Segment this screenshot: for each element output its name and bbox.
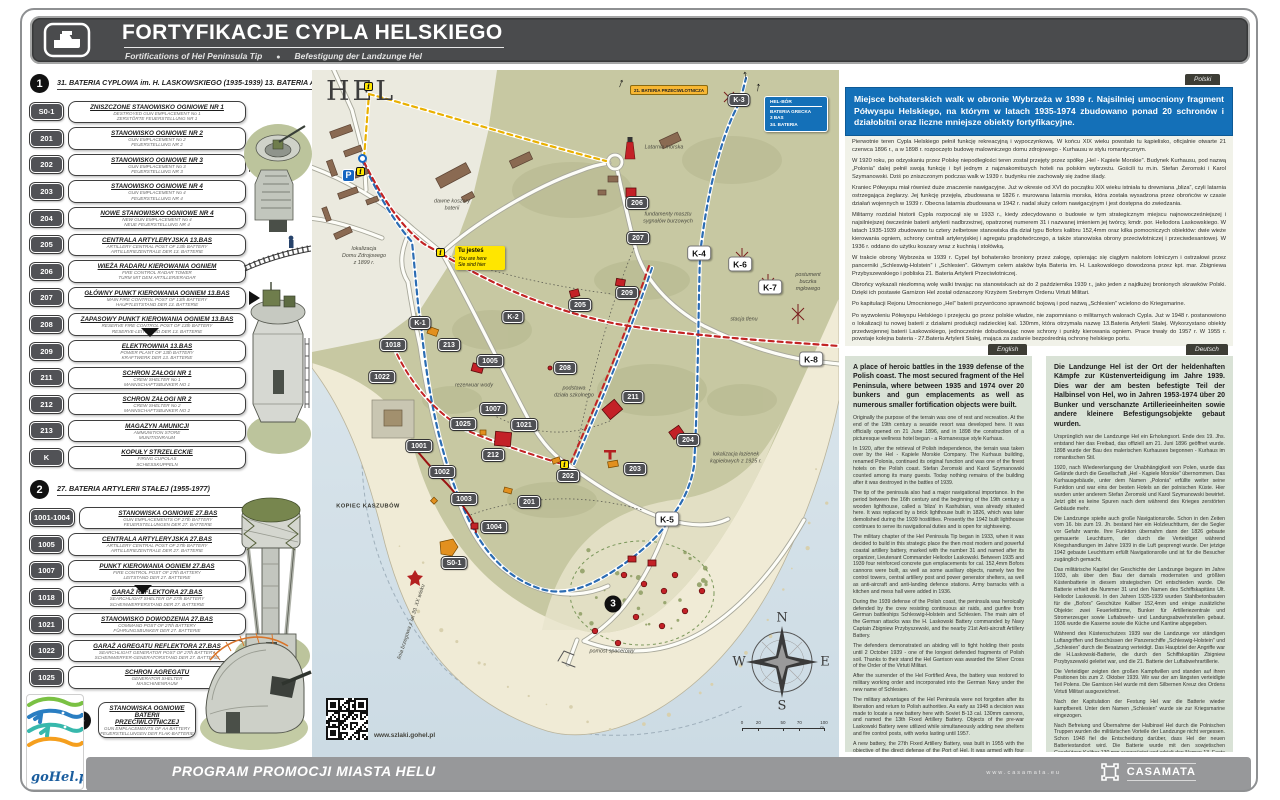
map-label: postument buczka mgłowego [793, 272, 824, 292]
map-label: KOPIEC KASZUBÓW [336, 504, 399, 511]
footer-bar: PROGRAM PROMOCJI MIASTA HELU www.casamat… [86, 757, 1251, 791]
info-icon: i [364, 82, 373, 91]
map-marker-S0-1: S0-1 [442, 557, 467, 569]
paragraph: The military advantages of the Hel Penin… [853, 697, 1024, 738]
legend-sub-de: TURM MIT DEM ARTILLERIERADAR [118, 275, 195, 280]
legend-code-badge: 204 [30, 210, 63, 227]
paragraph: In 1920, after the retrieval of Polish i… [853, 446, 1024, 487]
paragraph: W trakcie obrony Wybrzeża w 1939 r. Cype… [852, 255, 1226, 279]
map-marker-K-6: K-6 [728, 257, 752, 272]
legend-code-badge: 1025 [30, 669, 63, 686]
legend-item-203: 203STANOWISKO OGNIOWE NR 4GUN EMPLACEMEN… [30, 180, 260, 204]
legend-code-badge: 209 [30, 343, 63, 360]
legend-sub-de: FEUERSTELLUNG NR 2 [131, 142, 183, 147]
legend-sub-de: ZERSTÖRTE FEUERSTELLUNG NR 1 [117, 116, 198, 121]
legend-code-badge: 212 [30, 396, 63, 413]
legend-item-box: WIEŻA RADARU KIEROWANIA OGNIEMFIRE CONTR… [68, 260, 246, 282]
legend-title-pl: ZAPASOWY PUNKT KIEROWANIA OGNIEM 13.BAS [81, 316, 234, 323]
legend-item-213: 213MAGAZYN AMUNICJIAMMUNITION STOREMUNIT… [30, 419, 260, 443]
legend-item-205: 205CENTRALA ARTYLERYJSKA 13.BASARTILLERY… [30, 233, 260, 257]
polish-lead: Miejsce bohaterskich walk w obronie Wybr… [845, 87, 1233, 136]
legend-title-pl: ELEKTROWNIA 13.BAS [122, 343, 192, 350]
map-marker-K-2: K-2 [502, 311, 523, 323]
legend-list-battery-31: S0-1ZNISZCZONE STANOWISKO OGNIOWE NR 1DE… [30, 100, 260, 469]
map-marker-1018: 1018 [380, 339, 406, 351]
arrow-down-icon [134, 585, 152, 594]
legend-sub-de: MUNITIONRAUM [139, 435, 175, 440]
map-marker-205: 205 [569, 299, 591, 311]
legend-sub-de: ARTILLERIEZENTRALE DER 27. BATTERIE [111, 548, 203, 553]
paragraph: Die Landzunge spielte auch große Navigat… [1054, 516, 1225, 564]
map-marker-1025: 1025 [450, 418, 476, 430]
map-label: fundamenty masztu sygnałów burzowych [643, 211, 693, 225]
map-label: lokalizacja Domu Zdrojowego z 1899 r. [342, 246, 386, 266]
map-label: stacja tlenu [730, 317, 757, 324]
map-marker-1002: 1002 [429, 466, 455, 478]
legend-title-pl: STANOWISKO OGNIOWE NR 2 [111, 130, 203, 137]
you-are-here-pl: Tu jesteś [458, 248, 502, 256]
arrow-down-icon [141, 328, 159, 337]
legend-code-badge: 1018 [30, 589, 63, 606]
map-marker-209: 209 [616, 287, 638, 299]
legend-item-box: ELEKTROWNIA 13.BASPOWER PLANT OF 13th BA… [68, 340, 246, 362]
route-line: 3 BAS [770, 115, 822, 122]
trailhead-icon [358, 154, 367, 163]
legend-sub-de: MANNSCHAFTSBUNKER NO 1 [124, 382, 190, 387]
scale-label: 0 [741, 720, 744, 725]
legend-title-pl: KOPUŁY STRZELECKIE [121, 449, 193, 456]
map-marker-212: 212 [482, 449, 504, 461]
english-body: Originally the purpose of the terrain wa… [853, 415, 1024, 752]
legend-title-pl: STANOWISKA OGNIOWE 27.BAS [118, 510, 217, 517]
legend-code-badge: 205 [30, 236, 63, 253]
info-icon: i [356, 167, 365, 176]
map-marker-K-5: K-5 [655, 512, 679, 527]
map-base [312, 70, 839, 757]
legend-item-box: SCHRON ZAŁOGI NR 1CREW SHELTER No 1MANNS… [68, 367, 246, 389]
section-2-number: 2 [30, 480, 49, 499]
legend-title-pl: SCHRON ZAŁOGI NR 2 [123, 396, 192, 403]
map-marker-1005: 1005 [477, 355, 503, 367]
map-marker-204: 204 [677, 434, 699, 446]
paragraph: The military chapter of the Hel Peninsul… [853, 534, 1024, 596]
compass-e: E [820, 655, 830, 670]
legend-title-pl: GŁÓWNY PUNKT KIEROWANIA OGNIEM 13.BAS [84, 290, 229, 297]
program-label: PROGRAM PROMOCJI MIASTA HELU [172, 763, 436, 779]
map-marker-1004: 1004 [481, 521, 507, 533]
scale-label: 70 [797, 720, 802, 725]
legend-section-2-header: 2 27. BATERIA ARTYLERII STAŁEJ (1955-197… [30, 480, 210, 499]
map-marker-1021: 1021 [511, 419, 537, 431]
german-body: Ursprünglich war die Landzunge Hel ein E… [1054, 434, 1225, 752]
legend-title-pl: STANOWISKO OGNIOWE NR 3 [111, 157, 203, 164]
legend-section-3: 3 STANOWISKA OGNIOWE BATERII PRZECIWLOTN… [72, 702, 196, 738]
legend-item-212: 212SCHRON ZAŁOGI NR 2CREW SHELTER No 2MA… [30, 393, 260, 417]
legend-item-209: 209ELEKTROWNIA 13.BASPOWER PLANT OF 13th… [30, 339, 260, 363]
title-bar: FORTYFIKACJE CYPLA HELSKIEGO Fortificati… [30, 16, 1250, 64]
legend-code-badge: 201 [30, 130, 63, 147]
paragraph: Originally the purpose of the terrain wa… [853, 415, 1024, 442]
map-marker-1007: 1007 [480, 403, 506, 415]
legend-sub-de: SCHEINWERFERSTAND DER 27. BATTERIE [110, 602, 205, 607]
fort-icon [1099, 761, 1121, 783]
scale-tick [783, 728, 784, 731]
illustration-radar-tower [243, 252, 313, 464]
aa-battery-route-label: 21. BATERIA PRZECIWLOTNICZA [630, 85, 708, 95]
map-marker-207: 207 [627, 232, 649, 244]
map-marker-1022: 1022 [369, 371, 395, 383]
map-marker-1001: 1001 [406, 440, 432, 452]
legend-sub-de: FEUERSTELLUNGEN DER 27. BATTERIE [124, 522, 212, 527]
casamata-url: www.casamata.eu [986, 770, 1061, 776]
paragraph: Während des Küstenschutzes 1939 war die … [1054, 631, 1225, 665]
legend-item-207: 207GŁÓWNY PUNKT KIEROWANIA OGNIEM 13.BAS… [30, 286, 260, 310]
legend-item-box: STANOWISKO OGNIOWE NR 3GUN EMPLACEMENT N… [68, 154, 246, 176]
legend-sub-de: FÜHRUNGSBUNKER DER 27. BATTERIE [113, 628, 200, 633]
paragraph: Ursprünglich war die Landzunge Hel ein E… [1054, 434, 1225, 461]
tab-polski: Polski [1185, 74, 1220, 85]
legend-code-badge: 1007 [30, 562, 63, 579]
scale-tick [742, 728, 743, 731]
legend-code-badge: K [30, 449, 63, 466]
legend-sub-de: KRAFTWERK DER 13. BATTERIE [122, 355, 193, 360]
you-are-here-callout: Tu jesteś You are here Sie sind hier [455, 246, 505, 270]
map-marker-202: 202 [557, 470, 579, 482]
compass-s: S [778, 699, 787, 714]
legend-item-box: SCHRON ZAŁOGI NR 2CREW SHELTER No 2MANNS… [68, 393, 246, 415]
compass-w: W [732, 655, 745, 670]
legend-sub-de: FEUERSTELLUNG NR 4 [131, 196, 183, 201]
fish-waves-icon [27, 695, 83, 757]
legend-sub-de: FEUERSTELLUNG NR 3 [131, 169, 183, 174]
paragraph: W 1920 roku, po odzyskaniu przez Polskę … [852, 158, 1226, 182]
paragraph: A new battery, the 27th Fixed Artillery … [853, 741, 1024, 752]
legend-title-pl: SCHRON AGREGATU [125, 669, 189, 676]
legend-item-box: PUNKT KIEROWANIA OGNIEM 27.BASFIRE CONTR… [68, 560, 246, 582]
page-subtitle: Fortifications of Hel Peninsula Tip●Befe… [125, 51, 422, 61]
paragraph: After the surrender of the Hel Fortified… [853, 673, 1024, 694]
legend-item-box: CENTRALA ARTYLERYJSKA 27.BASARTILLERY CE… [68, 533, 246, 555]
info-icon: i [436, 248, 445, 257]
map-marker-208: 208 [554, 362, 576, 374]
german-column: Die Landzunge Hel ist der Ort der helden… [1046, 356, 1233, 752]
legend-code-badge: 202 [30, 156, 63, 173]
map-marker-K-1: K-1 [409, 317, 430, 329]
paragraph: The defenders demonstrated an abiding wi… [853, 643, 1024, 670]
legend-item-201: 201STANOWISKO OGNIOWE NR 2GUN EMPLACEMEN… [30, 127, 260, 151]
legend-code-badge: S0-1 [30, 103, 63, 120]
paragraph: Militarny rozdział historii Cypla rozpoc… [852, 212, 1226, 251]
english-lead: A place of heroic battles in the 1939 de… [853, 363, 1024, 410]
section-2-title: 27. BATERIA ARTYLERII STAŁEJ (1955-1977) [57, 484, 210, 496]
paragraph: Nach Befreiung und Übernahme der Halbins… [1054, 723, 1225, 752]
subtitle-de: Befestigung der Landzunge Hel [295, 51, 423, 61]
info-icon: i [560, 460, 569, 469]
legend-item-box: STANOWISKO OGNIOWE NR 2GUN EMPLACEMENT N… [68, 127, 246, 149]
bunker-logo-icon [42, 22, 94, 58]
parking-icon: P [342, 169, 355, 182]
legend-code-badge: 1005 [30, 536, 63, 553]
you-are-here-de: Sie sind hier [458, 262, 502, 268]
legend-item-box: GŁÓWNY PUNKT KIEROWANIA OGNIEM 13.BASMAI… [68, 287, 246, 309]
map-marker-1003: 1003 [451, 493, 477, 505]
paragraph: Das militärische Kapitel der Geschichte … [1054, 567, 1225, 629]
legend-item-206: 206WIEŻA RADARU KIEROWANIA OGNIEMFIRE CO… [30, 260, 260, 284]
scale-tick [824, 728, 825, 731]
legend-sub-de: SCHIESSKUPPELN [136, 462, 178, 467]
legend-item-box: ZNISZCZONE STANOWISKO OGNIOWE NR 1DESTRO… [68, 101, 246, 123]
paragraph: Kraniec Półwyspu miał również duże znacz… [852, 185, 1226, 209]
legend-item-box: STANOWISKA OGNIOWE BATERII PRZECIWLOTNIC… [98, 702, 196, 738]
legend-title-pl: GARAŻ REFLEKTORA 27.BAS [112, 589, 203, 596]
legend-code-badge: 208 [30, 316, 63, 333]
map-marker-211: 211 [622, 391, 643, 403]
legend-code-badge: 213 [30, 422, 63, 439]
map-panel: HEL S0-120120220320420520620720820921121… [312, 70, 839, 757]
map-marker-K-8: K-8 [799, 352, 823, 367]
german-lead: Die Landzunge Hel ist der Ort der helden… [1054, 363, 1225, 429]
gohel-brand: goHel.pl [31, 770, 84, 785]
map-marker-K-3: K-3 [728, 94, 749, 106]
legend-title-pl: PUNKT KIEROWANIA OGNIEM 27.BAS [99, 563, 214, 570]
compass-n: N [776, 611, 787, 626]
qr-code [326, 698, 368, 740]
map-website: www.szlaki.gohel.pl [374, 732, 435, 739]
map-label: Latarnia morska [645, 145, 684, 152]
legend-item-box: CENTRALA ARTYLERYJSKA 13.BASARTILLERY CE… [68, 234, 246, 256]
legend-item-box: KOPUŁY STRZELECKIEFIRING CUPOLASSCHIESSK… [68, 446, 246, 468]
legend-item-K: KKOPUŁY STRZELECKIEFIRING CUPOLASSCHIESS… [30, 446, 260, 470]
scale-label: 50 [780, 720, 785, 725]
legend-sub-de: LEITSTAND DER 27. BATTERIE [124, 575, 191, 580]
legend-title-pl: ZNISZCZONE STANOWISKO OGNIOWE NR 1 [90, 104, 224, 111]
map-marker-206: 206 [626, 197, 648, 209]
legend-code-badge: 1022 [30, 642, 63, 659]
map-marker-K-4: K-4 [687, 246, 711, 261]
legend-title-pl: SCHRON ZAŁOGI NR 1 [123, 370, 192, 377]
casamata-logo: CASAMATA [1099, 761, 1196, 783]
map-label: podstawa działa szkolnego [554, 385, 594, 399]
legend-item-202: 202STANOWISKO OGNIOWE NR 3GUN EMPLACEMEN… [30, 153, 260, 177]
map-label: dawne koszary baterii [434, 198, 470, 212]
legend-sub-de: MANNSCHAFTSBUNKER NO 2 [124, 408, 190, 413]
legend-sub-de: MASCHINENRAUM [136, 681, 177, 686]
legend-code-badge: 203 [30, 183, 63, 200]
casamata-name: CASAMATA [1127, 763, 1196, 781]
paragraph: The tip of the peninsula also had a majo… [853, 490, 1024, 531]
legend-sub-de: HAUPTLEITSTAND DER 13. BATTERIE [116, 302, 199, 307]
legend-sub-de: ARTILLERIEZENTRALE DER 13. BATTERIE [111, 249, 203, 254]
title-rule [124, 47, 504, 48]
town-name-label: HEL [326, 76, 396, 107]
paragraph: 1920, nach Wiedererlangung der Unabhängi… [1054, 465, 1225, 513]
legend-item-box: NOWE STANOWISKO OGNIOWE NR 4NEW GUN EMPL… [68, 207, 246, 229]
map-marker-213: 213 [438, 339, 460, 351]
english-column: A place of heroic battles in the 1939 de… [845, 356, 1032, 752]
map-marker-K-7: K-7 [758, 280, 782, 295]
scale-bar: 0205070100 m [742, 720, 824, 734]
route-line: 34. BATERIA [770, 122, 822, 129]
map-label: pomost spacerowy [590, 649, 635, 656]
map-label: rezerwuar wody [455, 383, 493, 390]
dot-separator: ● [276, 54, 280, 61]
tab-english: English [988, 344, 1027, 355]
legend-item-S0-1: S0-1ZNISZCZONE STANOWISKO OGNIOWE NR 1DE… [30, 100, 260, 124]
page-title: FORTYFIKACJE CYPLA HELSKIEGO [122, 21, 503, 45]
legend-title-pl: CENTRALA ARTYLERYJSKA 27.BAS [102, 536, 212, 543]
scale-tick [758, 728, 759, 731]
paragraph: During the 1939 defense of the Polish co… [853, 599, 1024, 640]
legend-code-badge: 1021 [30, 616, 63, 633]
legend-title-pl: MAGAZYN AMUNICJI [125, 423, 189, 430]
map-label: lokalizacja łazienek kąpielowych z 1925 … [710, 451, 762, 465]
legend-title: STANOWISKA OGNIOWE BATERII PRZECIWLOTNIC… [103, 705, 191, 726]
legend-item-box: STANOWISKO OGNIOWE NR 4GUN EMPLACEMENT N… [68, 180, 246, 202]
map-marker-203: 203 [624, 463, 646, 475]
legend-sub-de: FEUERSTELLUNGEN DER FLAK-BATTERIE [100, 731, 194, 736]
scale-tick [799, 728, 800, 731]
legend-code-badge: 211 [30, 369, 63, 386]
legend-code-badge: 1001-1004 [30, 509, 74, 526]
section-1-number: 1 [30, 74, 49, 93]
legend-title-pl: CENTRALA ARTYLERYJSKA 13.BAS [102, 237, 212, 244]
route-line: HEL-BÓR [770, 100, 822, 107]
paragraph: Po kapitulacji Rejonu Umocnionego „Hel” … [852, 301, 1226, 309]
subtitle-en: Fortifications of Hel Peninsula Tip [125, 51, 262, 61]
paragraph: Obrońcy wykazali niezłomną wolę walki tr… [852, 282, 1226, 298]
gohel-logo: goHel.pl [26, 694, 84, 790]
legend-item-box: MAGAZYN AMUNICJIAMMUNITION STOREMUNITION… [68, 420, 246, 442]
legend-sub-de: NEUE FEUERSTELLUNG NR 4 [124, 222, 190, 227]
paragraph: Nach der Kapitulation der Festung Hel wa… [1054, 699, 1225, 720]
paragraph: Pierwotnie teren Cypla Helskiego pełnił … [852, 139, 1226, 155]
scale-label: 20 [756, 720, 761, 725]
illustration-casemate-gun [196, 588, 312, 756]
legend-item-204: 204NOWE STANOWISKO OGNIOWE NR 4NEW GUN E… [30, 206, 260, 230]
legend-code-badge: 207 [30, 289, 63, 306]
map-marker-201: 201 [518, 496, 540, 508]
legend-code-badge: 206 [30, 263, 63, 280]
route-line: BATERIA GRECKA [770, 109, 822, 116]
aa-battery-area-marker: 3 [605, 596, 622, 613]
polish-body: Pierwotnie teren Cypla Helskiego pełnił … [845, 134, 1233, 346]
legend-title-pl: NOWE STANOWISKO OGNIOWE NR 4 [100, 210, 213, 217]
route-destination-box: HEL-BÓR BATERIA GRECKA 3 BAS 34. BATERIA [764, 96, 828, 132]
legend-title-pl: STANOWISKO OGNIOWE NR 4 [111, 183, 203, 190]
paragraph: Die Verteidiger zeigten den großen Kampf… [1054, 669, 1225, 696]
tab-deutsch: Deutsch [1186, 344, 1228, 355]
legend-title-pl: WIEŻA RADARU KIEROWANIA OGNIEM [98, 263, 217, 270]
legend-item-211: 211SCHRON ZAŁOGI NR 1CREW SHELTER No 1MA… [30, 366, 260, 390]
paragraph: Po wyzwoleniu Półwyspu Helskiego i przej… [852, 313, 1226, 344]
